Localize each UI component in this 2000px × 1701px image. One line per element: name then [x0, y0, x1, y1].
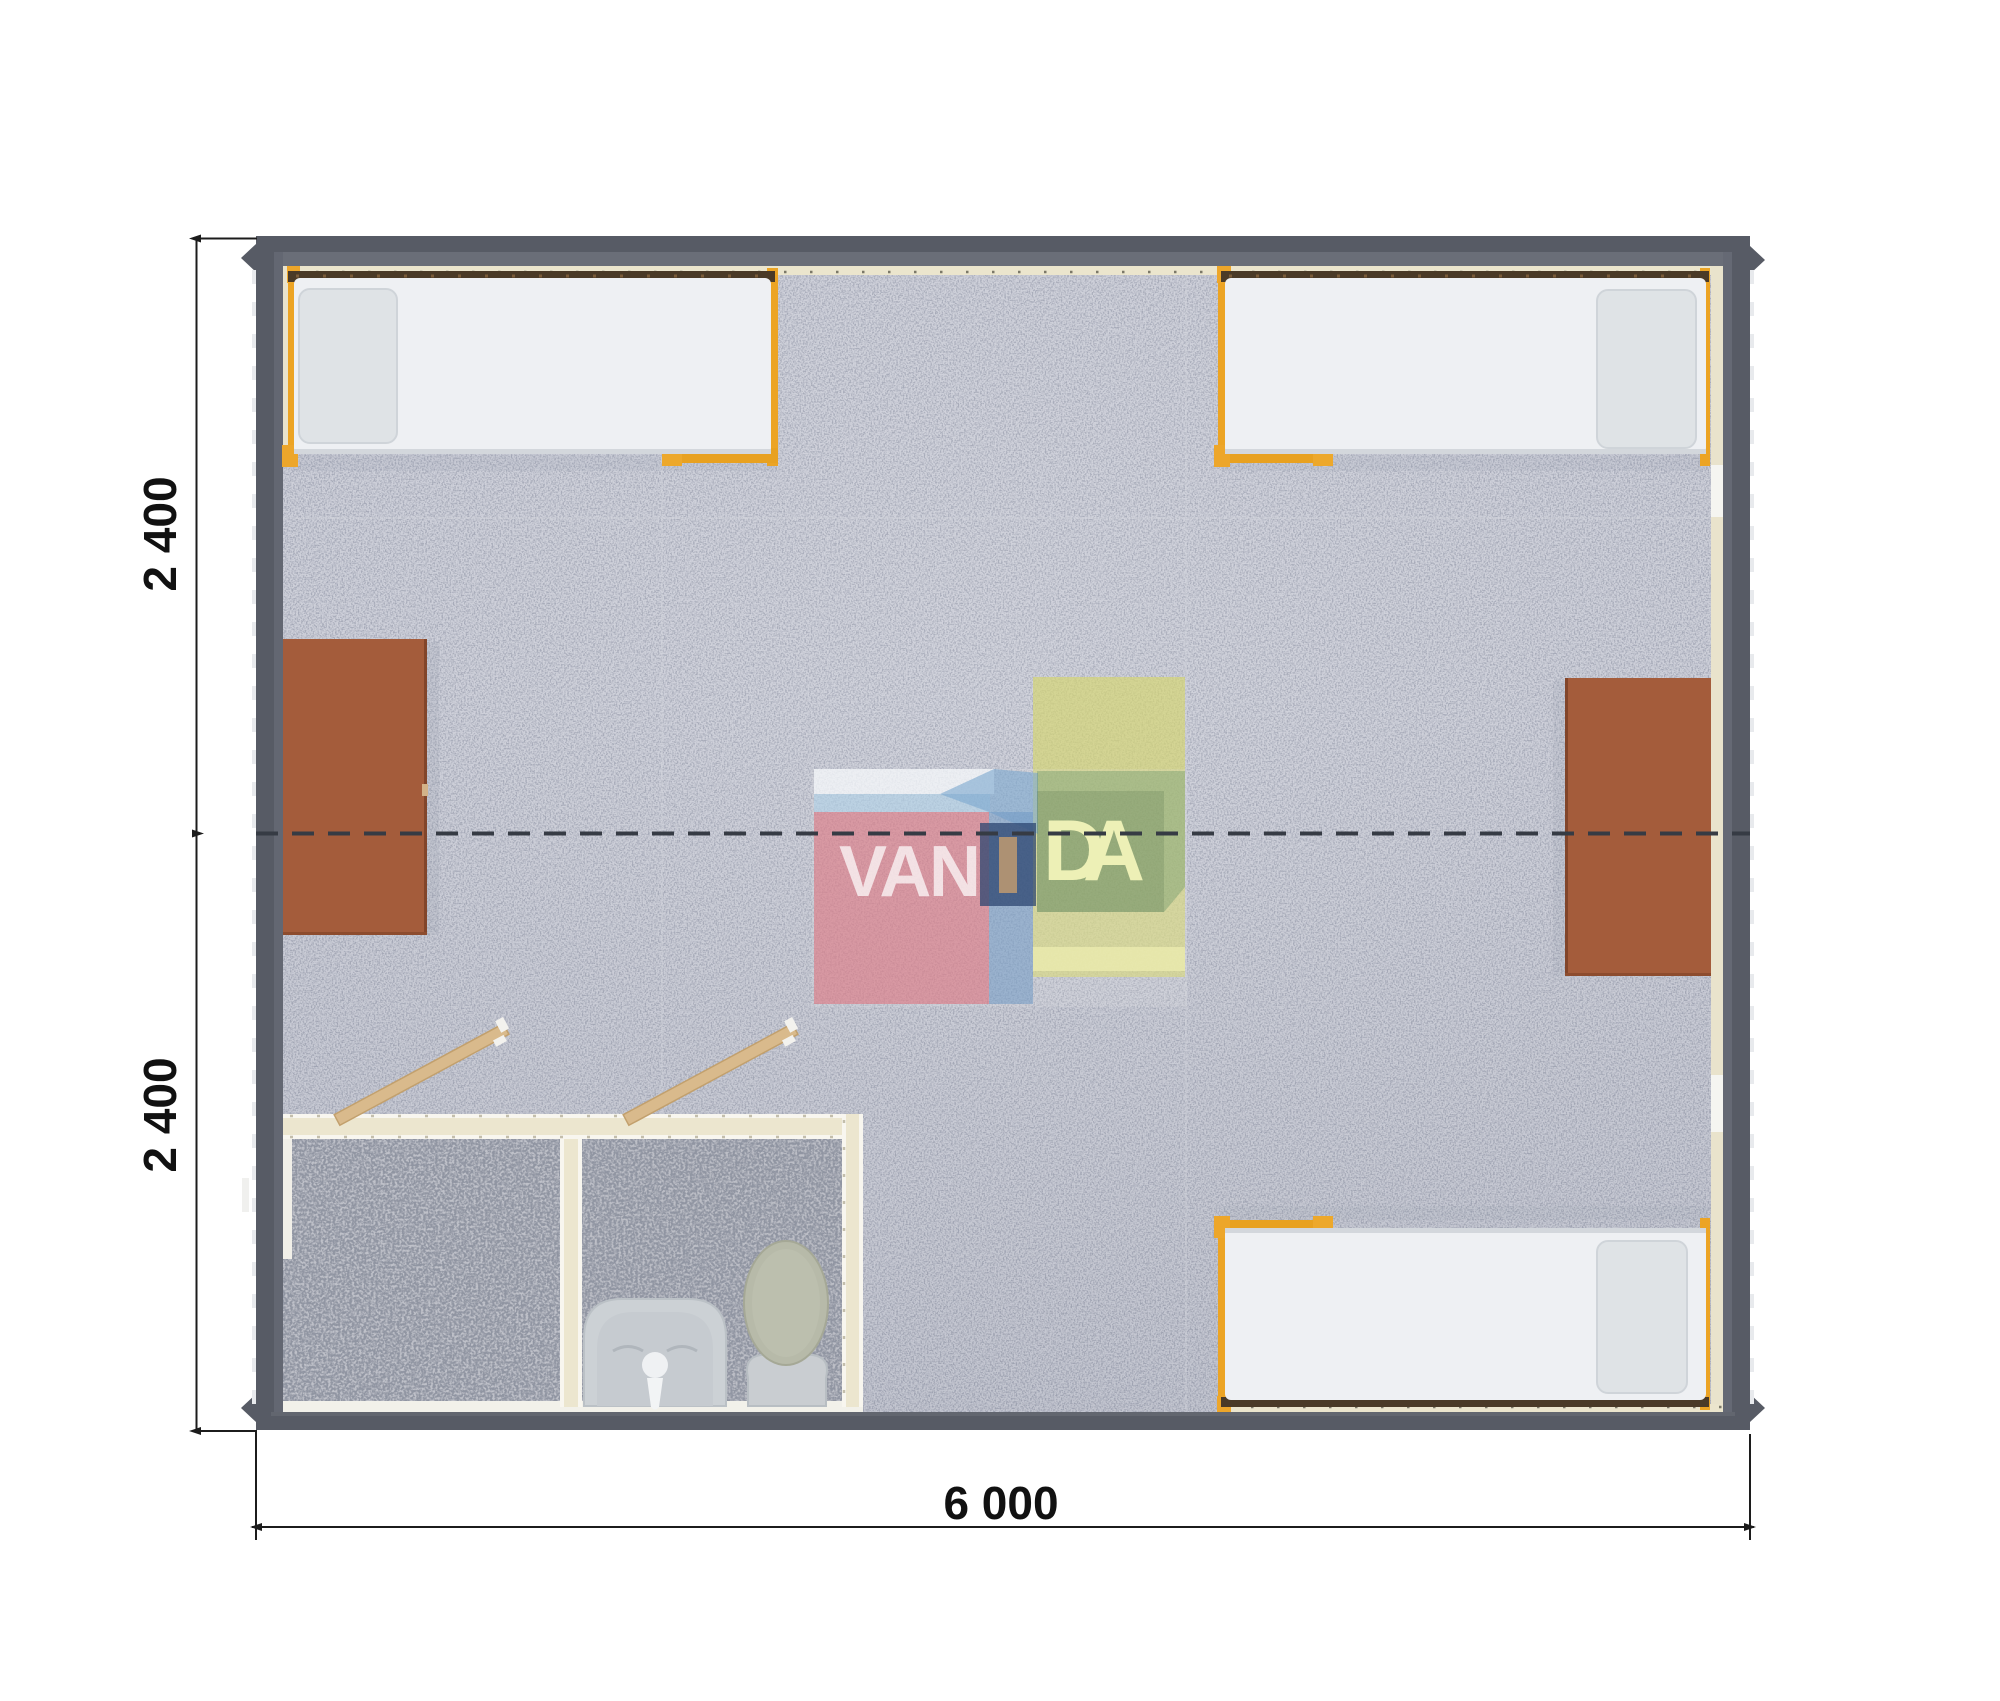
svg-text:2 400: 2 400 — [134, 1057, 186, 1172]
svg-text:2 400: 2 400 — [134, 476, 186, 591]
svg-text:VAN: VAN — [839, 832, 981, 912]
svg-text:6 000: 6 000 — [943, 1477, 1058, 1529]
svg-text:DA: DA — [1043, 803, 1145, 899]
